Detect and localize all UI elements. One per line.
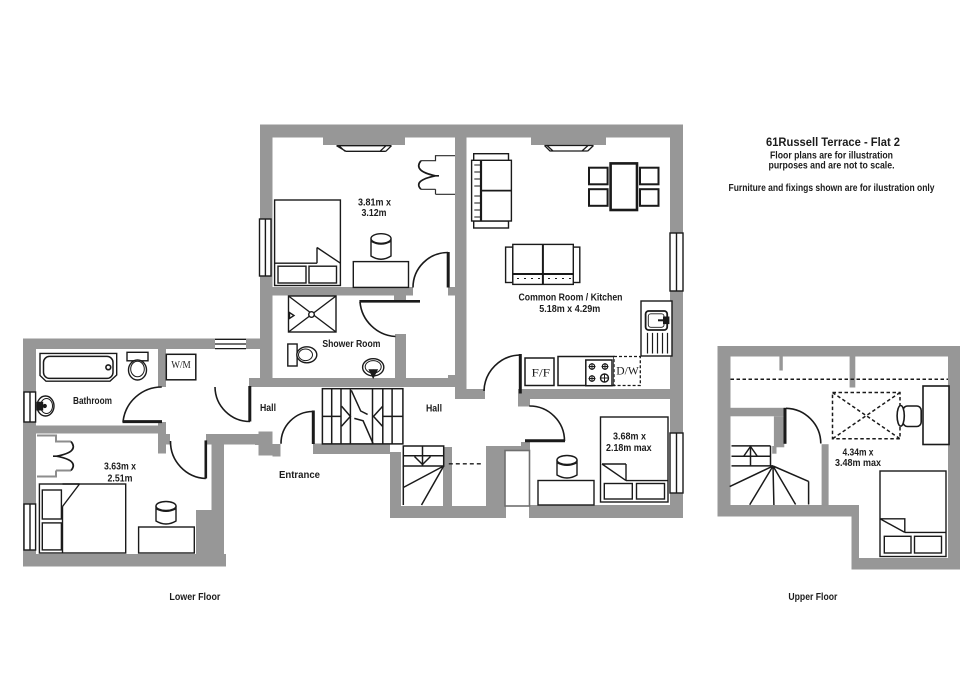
- svg-text:Upper Floor: Upper Floor: [788, 592, 837, 603]
- svg-text:2.18m max: 2.18m max: [606, 443, 652, 454]
- svg-text:3.81m x: 3.81m x: [358, 198, 391, 209]
- svg-text:5.18m x 4.29m: 5.18m x 4.29m: [539, 304, 600, 315]
- svg-text:61Russell Terrace - Flat 2: 61Russell Terrace - Flat 2: [766, 135, 900, 149]
- svg-text:3.48m max: 3.48m max: [835, 457, 881, 469]
- svg-text:Common Room / Kitchen: Common Room / Kitchen: [519, 293, 623, 304]
- svg-text:W/M: W/M: [171, 359, 191, 371]
- svg-text:Lower Floor: Lower Floor: [169, 592, 220, 603]
- svg-text:3.63m x: 3.63m x: [104, 462, 136, 473]
- svg-text:Hall: Hall: [260, 403, 276, 414]
- svg-text:3.68m x: 3.68m x: [613, 432, 646, 443]
- svg-text:Shower Room: Shower Room: [322, 339, 380, 350]
- svg-text:2.51m: 2.51m: [108, 474, 133, 485]
- svg-text:Hall: Hall: [426, 404, 442, 415]
- svg-text:Entrance: Entrance: [279, 470, 320, 481]
- svg-text:3.12m: 3.12m: [362, 208, 387, 219]
- svg-text:Furniture and fixings shown ar: Furniture and fixings shown are for ilus…: [729, 182, 935, 194]
- svg-text:purposes and are not to scale.: purposes and are not to scale.: [769, 160, 895, 172]
- svg-text:F/F: F/F: [532, 367, 551, 379]
- svg-text:Bathroom: Bathroom: [73, 396, 112, 407]
- svg-text:D/W: D/W: [616, 366, 639, 378]
